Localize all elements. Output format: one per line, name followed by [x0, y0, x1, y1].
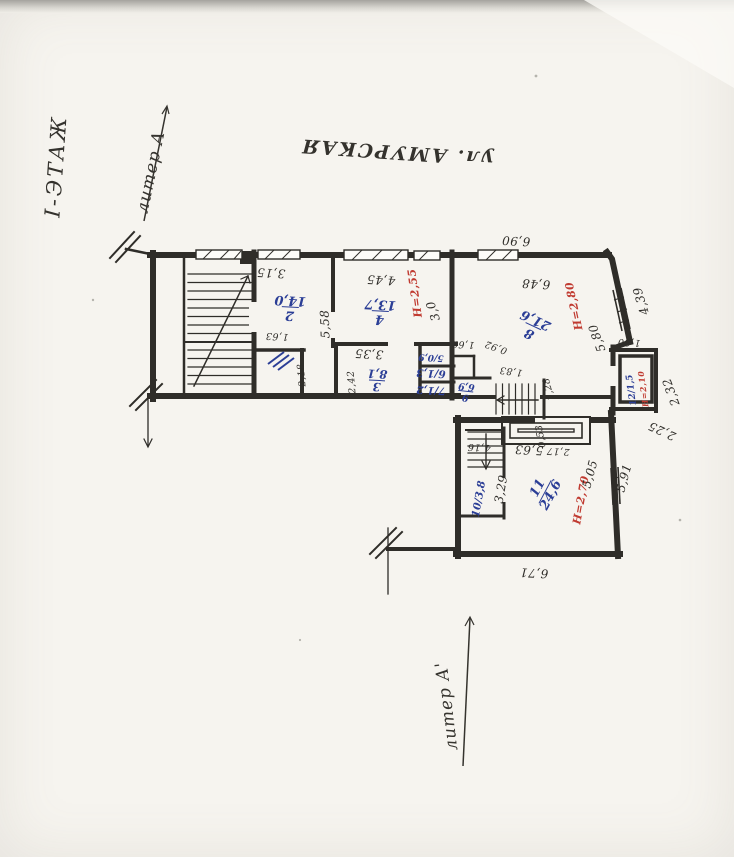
- dim-low-a: 4,16: [467, 441, 491, 453]
- scanned-floor-plan-sheet: І-ЭТАЖ литер А ул. АМУРСКАЯ литер А' 2 1…: [0, 0, 734, 857]
- room-label-7: 7/1,2: [416, 383, 446, 397]
- room-label-2: 2 14,0: [273, 292, 306, 323]
- dim-closet-width: 1,63: [265, 330, 289, 342]
- dim-room2-width: 3,15: [256, 265, 285, 280]
- dim-room4-width: 4,45: [366, 272, 395, 287]
- blue-hatch-mark: [268, 352, 294, 370]
- room-label-4: 4 13,7: [363, 296, 396, 327]
- room-label-6: 6/1,3: [416, 366, 446, 380]
- room-label-5: 5/0,9: [418, 351, 444, 362]
- floor-plan-drawing: [0, 0, 734, 857]
- dim-room2-height: 5,58: [318, 309, 333, 338]
- dim-top-width: 6,90: [501, 233, 530, 248]
- dim-room8-width: 6,48: [521, 276, 550, 291]
- dim-room3-left: 2,42: [346, 370, 359, 394]
- dim-bottom-width: 6,71: [519, 565, 548, 580]
- dim-closet-height: 2,18: [296, 363, 309, 387]
- room-label-9: 9 6,9: [457, 379, 476, 402]
- room-label-3: 3 8,1: [366, 367, 387, 394]
- dim-room3-width: 3,35: [354, 346, 383, 361]
- dim-porch-top: 1,80: [617, 336, 641, 348]
- dim-low-c: 2,17: [546, 445, 570, 457]
- dim-nook-left: 1,69: [451, 338, 475, 350]
